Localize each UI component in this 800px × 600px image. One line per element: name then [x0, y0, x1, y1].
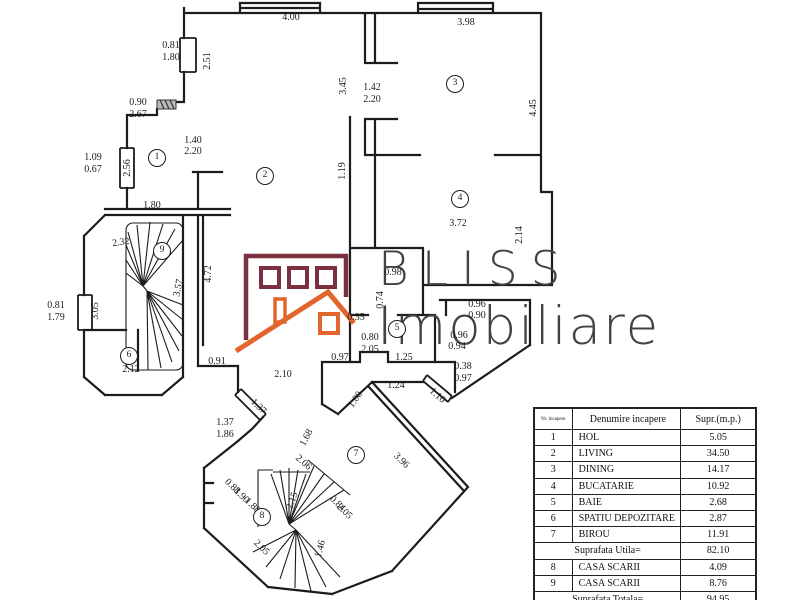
floorplan-page: BLISS Imobiliare 4.000.811.802.513.983.4…: [0, 0, 800, 600]
table-row: 9CASA SCARII8.76: [534, 575, 756, 591]
dimension-label: 3.72: [449, 219, 467, 229]
dimension-label: 3.05: [91, 302, 101, 320]
table-row: 5BAIE2.68: [534, 494, 756, 510]
dimension-label: 1.42: [363, 83, 381, 93]
dimension-label: 0.80: [361, 333, 379, 343]
dimension-label: 2.20: [363, 95, 381, 105]
table-row: 7BIROU11.91: [534, 527, 756, 543]
table-row: 1HOL5.05: [534, 430, 756, 446]
dimension-label: 0.97: [331, 353, 349, 363]
dimension-label: 1.86: [216, 430, 234, 440]
dimension-label: 3.45: [339, 77, 349, 95]
dimension-label: 2.10: [274, 370, 292, 380]
dimension-label: 0.96: [450, 331, 468, 341]
dimension-label: 1.80: [162, 53, 180, 63]
dimension-label: 2.56: [123, 159, 133, 177]
dimension-label: 0.81: [47, 301, 65, 311]
dimension-label: 2.12: [122, 365, 140, 375]
dimension-label: 0.98: [384, 268, 402, 278]
room-area-table: Nr. incapereDenumire incapereSupr.(m.p.)…: [533, 407, 757, 600]
dimension-label: 1.40: [184, 136, 202, 146]
dimension-label: 0.67: [84, 165, 102, 175]
room-number-badge: 6: [120, 347, 138, 365]
table-header-row: Nr. incapereDenumire incapereSupr.(m.p.): [534, 408, 756, 430]
dimension-label: 0.94: [448, 342, 466, 352]
dimension-label: 0.74: [376, 291, 386, 309]
room-number-badge: 9: [153, 242, 171, 260]
dimension-label: 0.81: [162, 41, 180, 51]
dimension-label: 1.80: [143, 201, 161, 211]
dimension-label: 0.91: [208, 357, 226, 367]
dimension-label: 2.14: [515, 226, 525, 244]
entry-door-hatch: [157, 100, 176, 109]
dimension-label: 1.79: [47, 313, 65, 323]
dimension-label: 2.20: [184, 147, 202, 157]
room-number-badge: 8: [253, 508, 271, 526]
dimension-label: 0.38: [454, 362, 472, 372]
table-row: 3DINING14.17: [534, 462, 756, 478]
room-number-badge: 1: [148, 149, 166, 167]
dimension-label: 0.35: [347, 313, 365, 323]
dimension-label: 1.25: [395, 353, 413, 363]
table-row: 4BUCATARIE10.92: [534, 478, 756, 494]
dimension-label: 1.24: [387, 381, 405, 391]
table-row: 8CASA SCARII4.09: [534, 559, 756, 575]
dimension-label: 4.72: [204, 265, 214, 283]
dimension-label: 2.51: [203, 52, 213, 70]
dimension-label: 0.97: [454, 374, 472, 384]
dimension-label: 4.00: [282, 13, 300, 23]
room-number-badge: 7: [347, 446, 365, 464]
watermark-brand-subname: Imobiliare: [377, 300, 660, 353]
dimension-label: 4.45: [529, 99, 539, 117]
table-row: Suprafata Totala=94.95: [534, 591, 756, 600]
table-row: 2LIVING34.50: [534, 446, 756, 462]
watermark-house-icon: [236, 256, 354, 351]
room-number-badge: 2: [256, 167, 274, 185]
dimension-label: 2.05: [361, 345, 379, 355]
room-number-badge: 4: [451, 190, 469, 208]
room-number-badge: 5: [388, 320, 406, 338]
dimension-label: 1.37: [216, 418, 234, 428]
dimension-label: 0.90: [129, 98, 147, 108]
dimension-label: 1.09: [84, 153, 102, 163]
watermark-brand-name: BLISS: [378, 246, 574, 293]
dimension-label: 0.96: [468, 300, 486, 310]
table-row: Suprafata Utila=82.10: [534, 543, 756, 559]
dimension-label: 3.98: [457, 18, 475, 28]
room-number-badge: 3: [446, 75, 464, 93]
dimension-label: 0.90: [468, 311, 486, 321]
table-row: 6SPATIU DEPOZITARE2.87: [534, 510, 756, 526]
dimension-label: 1.19: [338, 162, 348, 180]
dimension-label: 2.67: [129, 110, 147, 120]
